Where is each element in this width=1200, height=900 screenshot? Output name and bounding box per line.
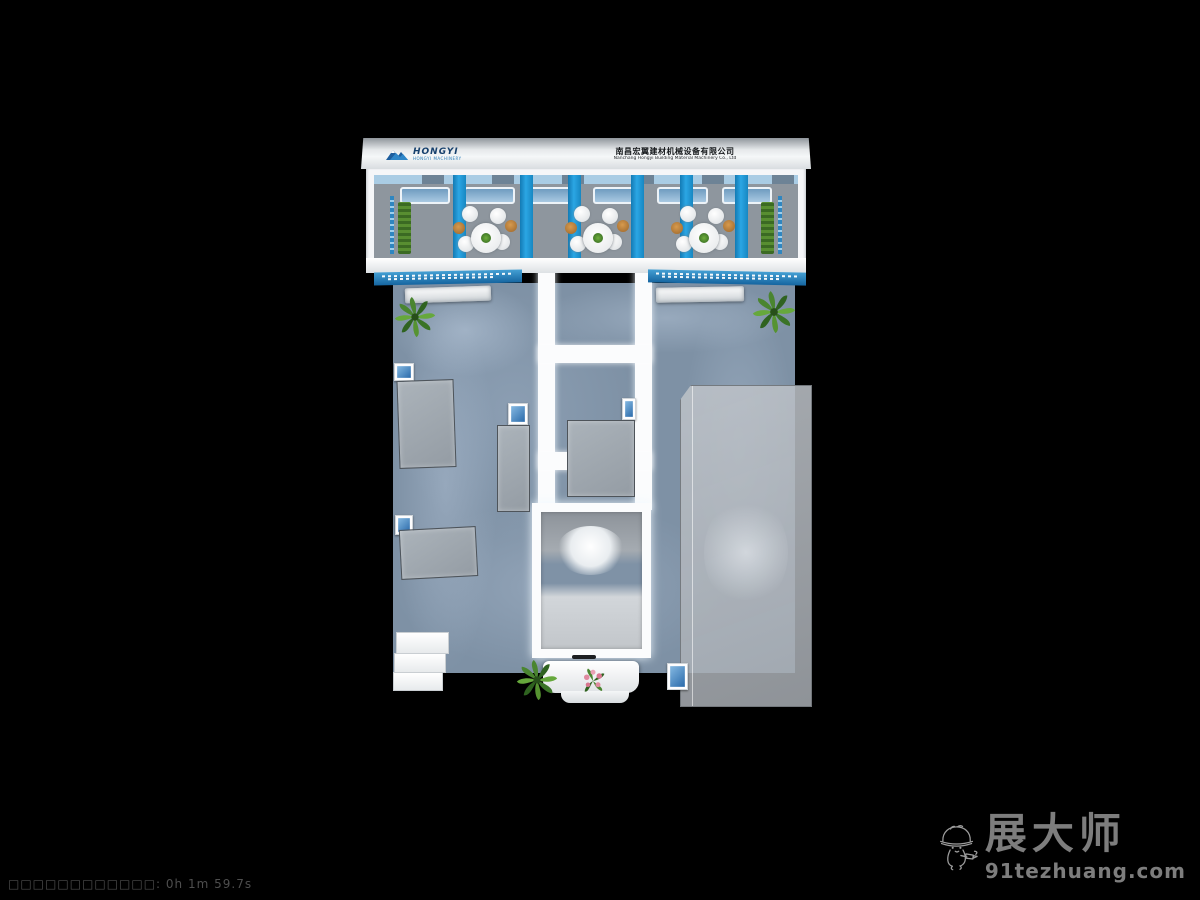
kiosk-screen-1 — [397, 366, 411, 378]
table-plant — [699, 233, 709, 243]
corridor-wall-left — [538, 268, 555, 510]
hedge-wall-right — [761, 202, 774, 254]
chair — [490, 208, 506, 224]
display-cabinet-4 — [399, 526, 479, 580]
table-group-2 — [568, 206, 628, 263]
corridor-beam-1 — [538, 345, 652, 363]
potted-plant-top-left — [394, 294, 436, 340]
mascot-hardhat-drill-icon — [936, 795, 979, 899]
chair — [574, 206, 590, 222]
exhibition-booth-render: HONGYI HONGYI MACHINERY 南昌宏翼建材机械设备有限公司 N… — [360, 138, 812, 712]
potted-plant-top-right — [752, 289, 796, 335]
upper-level-floor — [374, 175, 798, 263]
stool — [723, 220, 735, 232]
blue-pillar-4 — [631, 175, 644, 263]
brochure-stand-graphic — [670, 666, 685, 687]
wall-text-strip-left — [390, 196, 394, 254]
glass-volume-highlight — [704, 498, 787, 607]
table-plant — [593, 233, 603, 243]
light-fixture-right — [656, 286, 744, 303]
watermark: 展大师 91tezhuang.com — [936, 797, 1186, 897]
mountain-logo-icon — [385, 147, 409, 162]
company-logo: HONGYI HONGYI MACHINERY — [385, 147, 462, 162]
round-table — [471, 223, 501, 253]
watermark-site: 91tezhuang.com — [985, 861, 1186, 881]
display-cabinet-3 — [567, 420, 635, 497]
storage-drawer-top — [396, 632, 449, 654]
stool — [505, 220, 517, 232]
wall-text-strip-right — [778, 196, 782, 254]
kiosk-screen-3 — [625, 401, 633, 417]
desk-spotlight-bar — [572, 655, 596, 659]
corridor-wall-right — [635, 268, 652, 510]
table-group-1 — [456, 206, 516, 263]
booth-header-fascia: HONGYI HONGYI MACHINERY 南昌宏翼建材机械设备有限公司 N… — [361, 138, 811, 169]
hedge-wall-left — [398, 202, 411, 254]
chair — [680, 206, 696, 222]
blue-pillar-2 — [520, 175, 533, 263]
chair — [708, 208, 724, 224]
flower-arrangement — [578, 664, 608, 698]
display-kiosk-3 — [622, 398, 636, 420]
company-name-cn: 南昌宏翼建材机械设备有限公司 — [549, 147, 801, 156]
round-table — [583, 223, 613, 253]
display-kiosk-2 — [508, 403, 528, 425]
render-time-status: □□□□□□□□□□□□: 0h 1m 59.7s — [8, 877, 252, 891]
dome-light — [557, 526, 624, 575]
display-cabinet-2 — [497, 425, 530, 512]
kiosk-screen-2 — [511, 406, 525, 422]
round-table — [689, 223, 719, 253]
glass-volume-edge — [692, 386, 693, 706]
potted-plant-desk-left — [516, 656, 558, 704]
render-canvas: HONGYI HONGYI MACHINERY 南昌宏翼建材机械设备有限公司 N… — [0, 0, 1200, 900]
brochure-stand — [667, 663, 688, 690]
watermark-brand: 展大师 — [985, 813, 1186, 855]
storage-drawer-bottom — [393, 672, 443, 691]
chair — [602, 208, 618, 224]
stool — [565, 222, 577, 234]
storage-drawer-middle — [394, 653, 446, 673]
company-name-block: 南昌宏翼建材机械设备有限公司 Nanchang Hongyi Building … — [549, 147, 801, 161]
enclosed-room — [532, 503, 651, 658]
blue-pillar-6 — [735, 175, 748, 263]
display-kiosk-1 — [394, 363, 414, 381]
table-plant — [481, 233, 491, 243]
ceiling-light-panel — [464, 187, 514, 204]
stool — [617, 220, 629, 232]
stool — [671, 222, 683, 234]
stool — [453, 222, 465, 234]
table-group-3 — [674, 206, 734, 263]
display-cabinet-1 — [396, 379, 456, 469]
logo-tagline: HONGYI MACHINERY — [413, 157, 462, 161]
glass-display-volume — [680, 385, 812, 707]
company-name-en: Nanchang Hongyi Building Material Machin… — [549, 156, 801, 161]
chair — [462, 206, 478, 222]
